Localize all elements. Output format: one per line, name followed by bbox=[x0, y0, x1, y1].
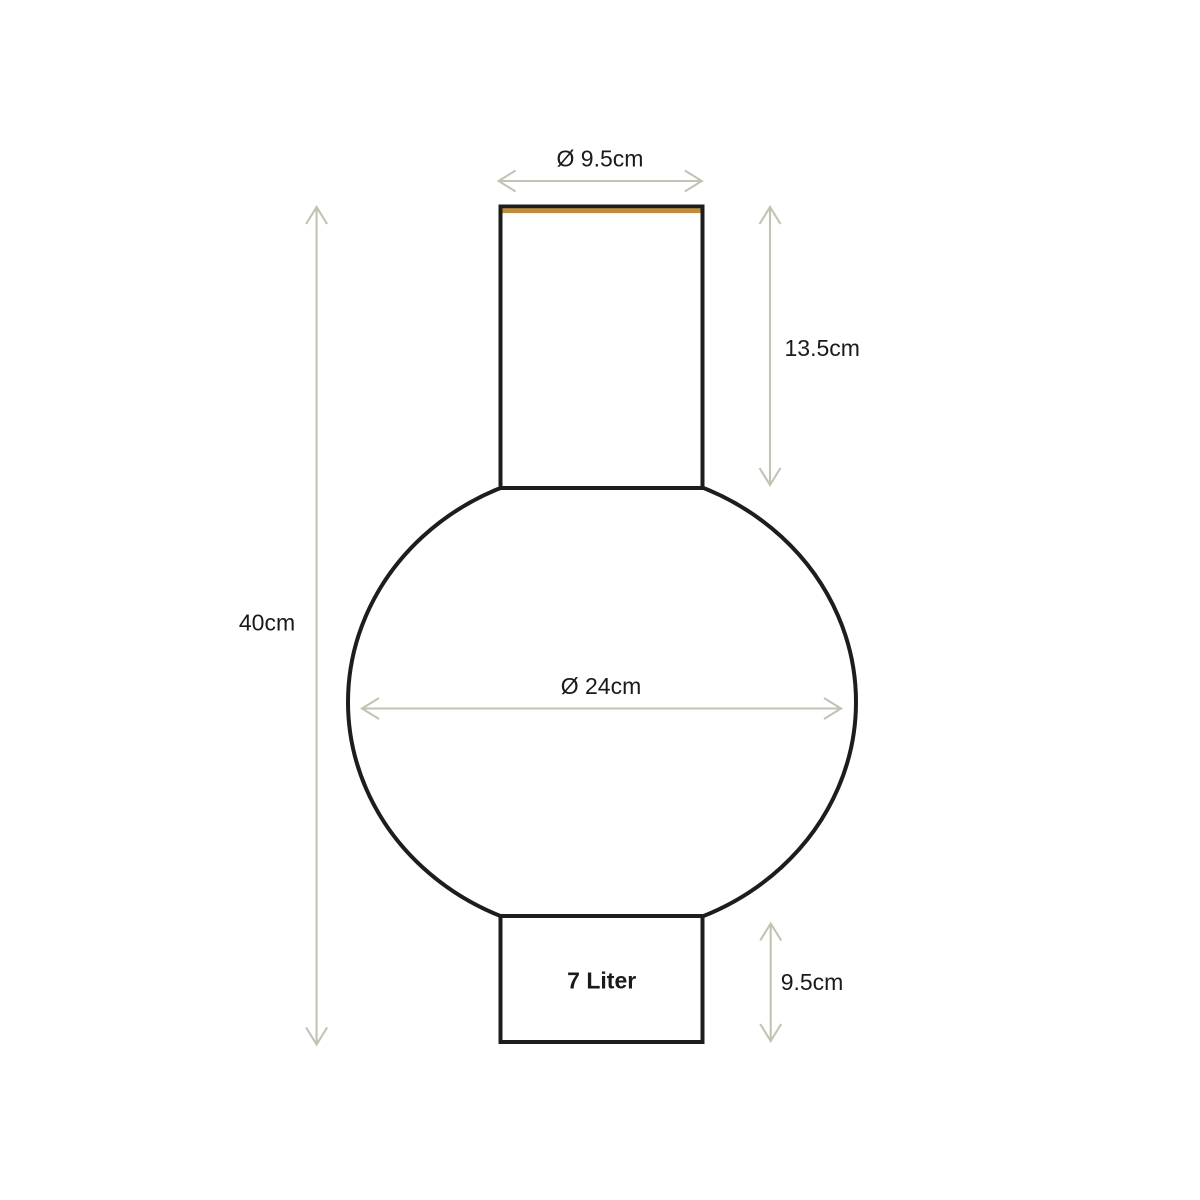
svg-text:13.5cm: 13.5cm bbox=[785, 335, 860, 361]
svg-text:40cm: 40cm bbox=[239, 609, 295, 635]
svg-text:Ø 24cm: Ø 24cm bbox=[561, 673, 642, 699]
svg-text:9.5cm: 9.5cm bbox=[781, 969, 844, 995]
svg-text:7 Liter: 7 Liter bbox=[567, 968, 636, 994]
svg-text:Ø 9.5cm: Ø 9.5cm bbox=[557, 146, 644, 172]
